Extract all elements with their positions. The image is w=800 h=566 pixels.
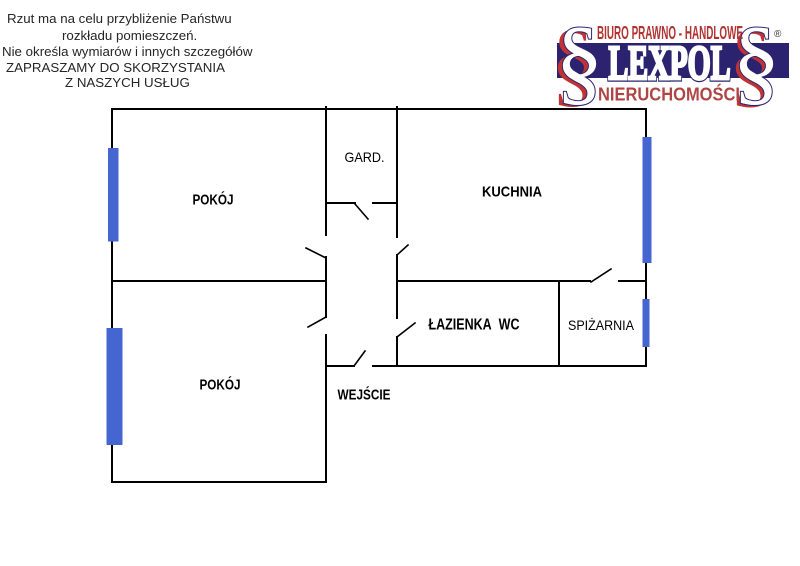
svg-text:KUCHNIA: KUCHNIA (482, 184, 542, 201)
svg-text:POKÓJ: POKÓJ (193, 191, 234, 209)
svg-text:ŁAZIENKA WC: ŁAZIENKA WC (429, 317, 520, 334)
svg-text:GARD.: GARD. (345, 149, 385, 165)
svg-text:SPIŻARNIA: SPIŻARNIA (568, 316, 635, 333)
svg-text:WEJŚCIE: WEJŚCIE (338, 386, 391, 404)
svg-text:POKÓJ: POKÓJ (200, 376, 241, 394)
